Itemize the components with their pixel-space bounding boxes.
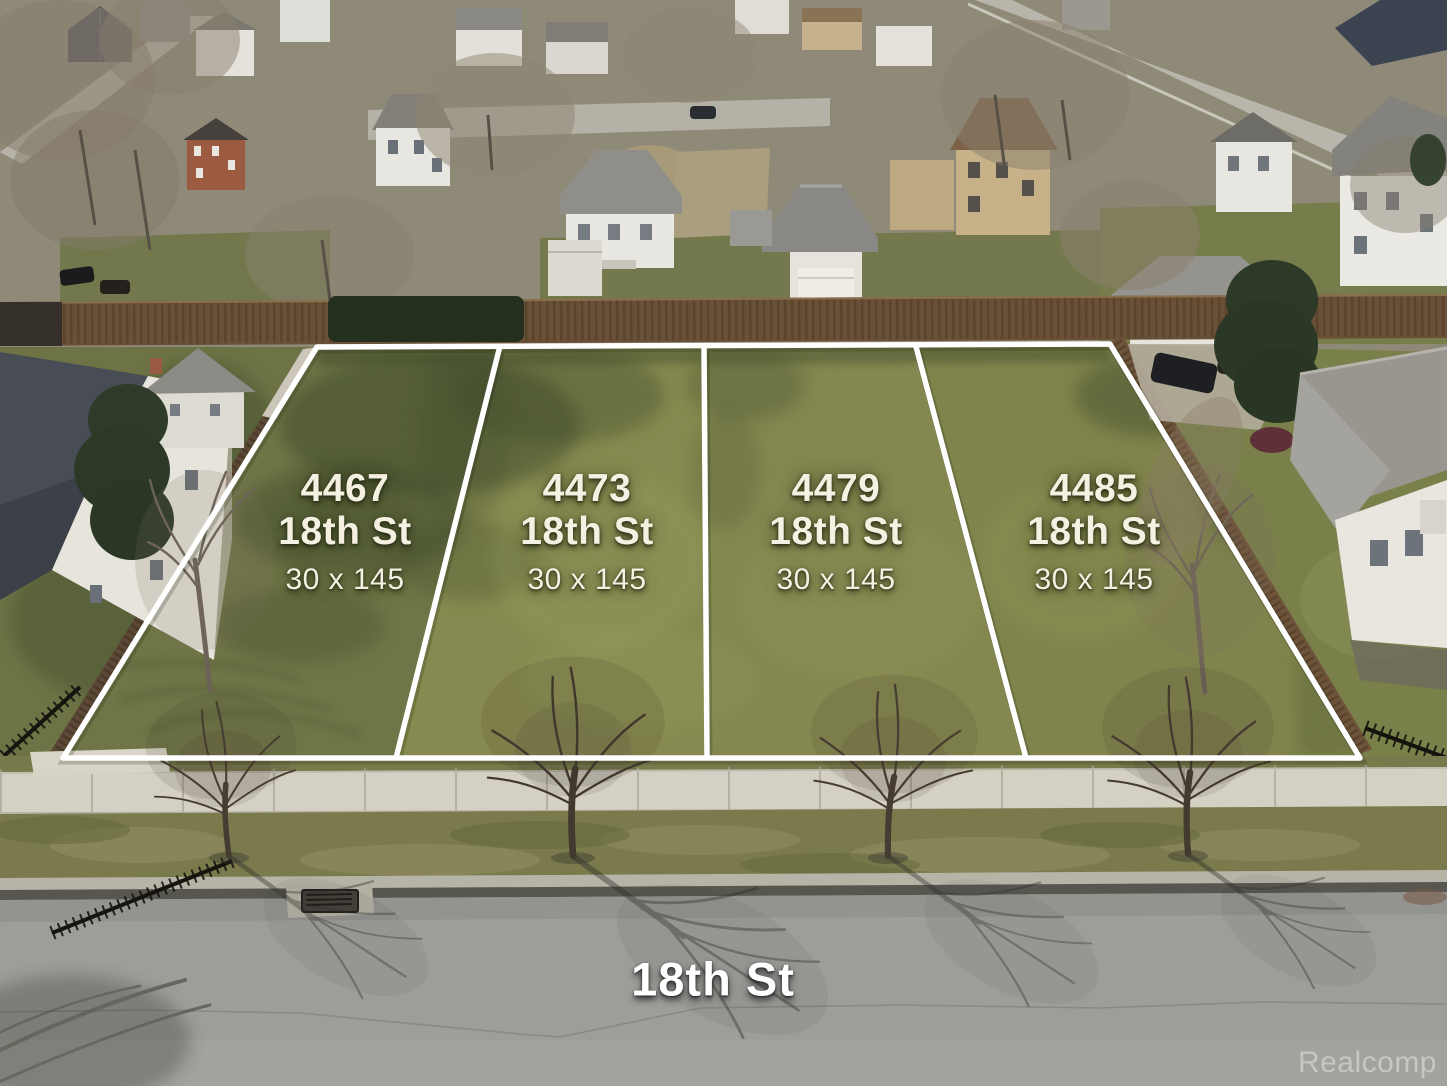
lot-dimensions: 30 x 145: [769, 563, 903, 596]
covered-item: [1250, 427, 1294, 453]
lot-street: 18th St: [520, 511, 654, 554]
lot-label-4467: 4467 18th St 30 x 145: [278, 468, 412, 596]
street-name-label: 18th St: [631, 952, 795, 1007]
lot-dimensions: 30 x 145: [1027, 563, 1161, 596]
lot-dimensions: 30 x 145: [278, 563, 412, 596]
bay-window: [1420, 500, 1446, 534]
photo-backdrop: [0, 0, 1447, 1086]
garage: [548, 240, 602, 296]
house: [802, 8, 862, 50]
lot-address: 4479: [769, 468, 903, 511]
lot-address: 4467: [278, 468, 412, 511]
watermark: Realcomp: [1298, 1046, 1437, 1080]
lot-dimensions: 30 x 145: [520, 563, 654, 596]
lot-street: 18th St: [1027, 511, 1161, 554]
aerial-listing-photo: 4467 18th St 30 x 145 4473 18th St 30 x …: [0, 0, 1447, 1086]
house: [546, 22, 608, 74]
garage: [730, 210, 772, 246]
lot-label-4479: 4479 18th St 30 x 145: [769, 468, 903, 596]
pavement-stain: [1403, 889, 1447, 905]
lot-address: 4485: [1027, 468, 1161, 511]
lot-street: 18th St: [769, 511, 903, 554]
lot-label-4473: 4473 18th St 30 x 145: [520, 468, 654, 596]
lot-address: 4473: [520, 468, 654, 511]
house: [876, 26, 932, 66]
lot-street: 18th St: [278, 511, 412, 554]
lot-label-4485: 4485 18th St 30 x 145: [1027, 468, 1161, 596]
chimney: [150, 358, 162, 374]
house: [280, 0, 330, 42]
